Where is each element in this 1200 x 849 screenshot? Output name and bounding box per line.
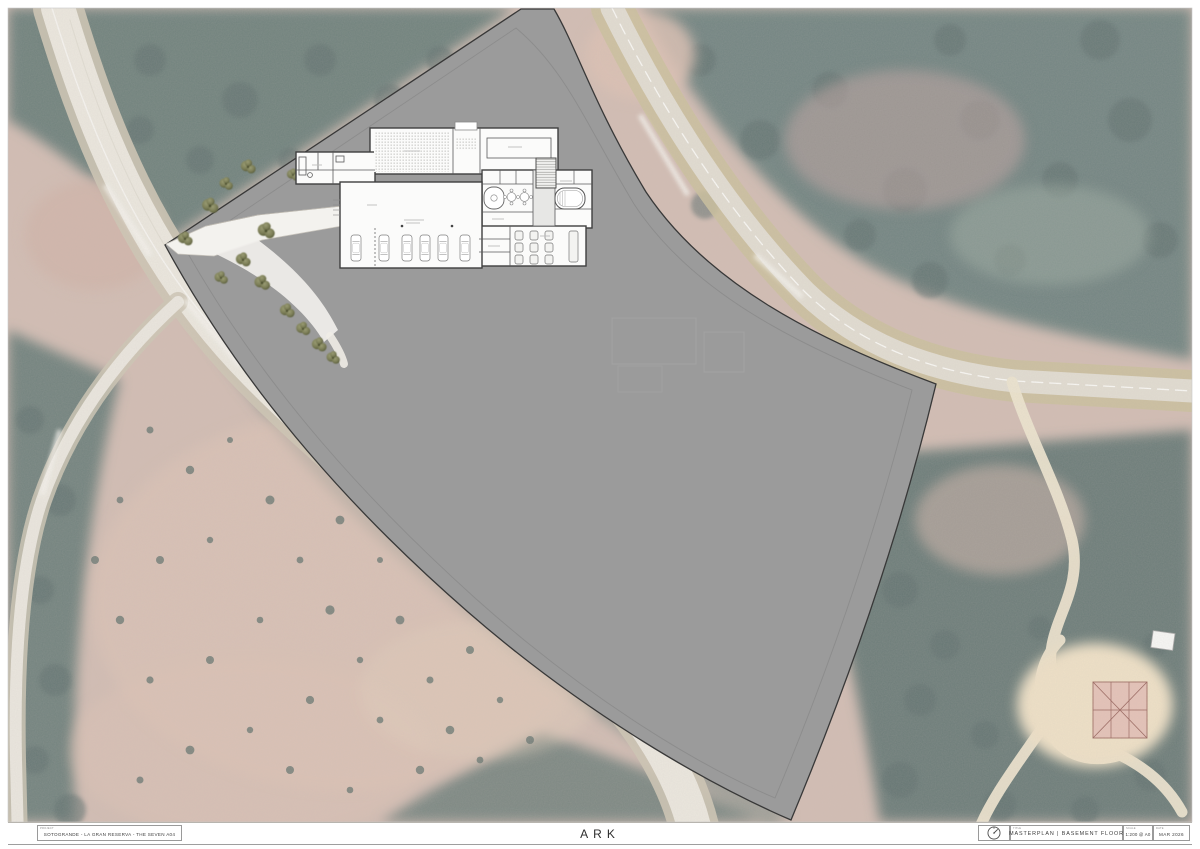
scale-cell: SCALE 1:200 @ A0 [1123, 825, 1153, 841]
plan-pool [555, 188, 585, 209]
aerial-basemap [0, 0, 1200, 849]
plan-rooflight [455, 122, 477, 130]
date-label: DATE [1156, 827, 1164, 830]
title-bar: PROJECT SOTOGRANDE - LA GRAN RESERVA - T… [8, 822, 1192, 845]
project-title-cell: PROJECT SOTOGRANDE - LA GRAN RESERVA - T… [37, 825, 182, 841]
scale-value: 1:200 @ A0 [1125, 830, 1150, 837]
plan-left-wing [296, 152, 375, 184]
studio-logo: ARK [580, 823, 620, 844]
plan-plant-hatch [456, 137, 476, 149]
plan-storage-hatch [374, 132, 450, 172]
north-arrow-icon [986, 825, 1002, 841]
plan-stair [536, 158, 556, 188]
drawing-title-cell: TITLE MASTERPLAN | BASEMENT FLOOR [1010, 825, 1123, 841]
drawing-title-label: TITLE [1013, 827, 1021, 830]
drawing-sheet: PROJECT SOTOGRANDE - LA GRAN RESERVA - T… [0, 0, 1200, 849]
date-value: MAR 2026 [1159, 830, 1184, 837]
masterplan-canvas [0, 0, 1200, 849]
date-cell: DATE MAR 2026 [1153, 825, 1190, 841]
north-arrow-cell [978, 825, 1010, 841]
scale-label: SCALE [1126, 827, 1136, 830]
project-label: PROJECT [40, 827, 54, 830]
drawing-title: MASTERPLAN | BASEMENT FLOOR [1009, 829, 1124, 837]
project-title: SOTOGRANDE - LA GRAN RESERVA - THE SEVEN… [44, 830, 176, 837]
